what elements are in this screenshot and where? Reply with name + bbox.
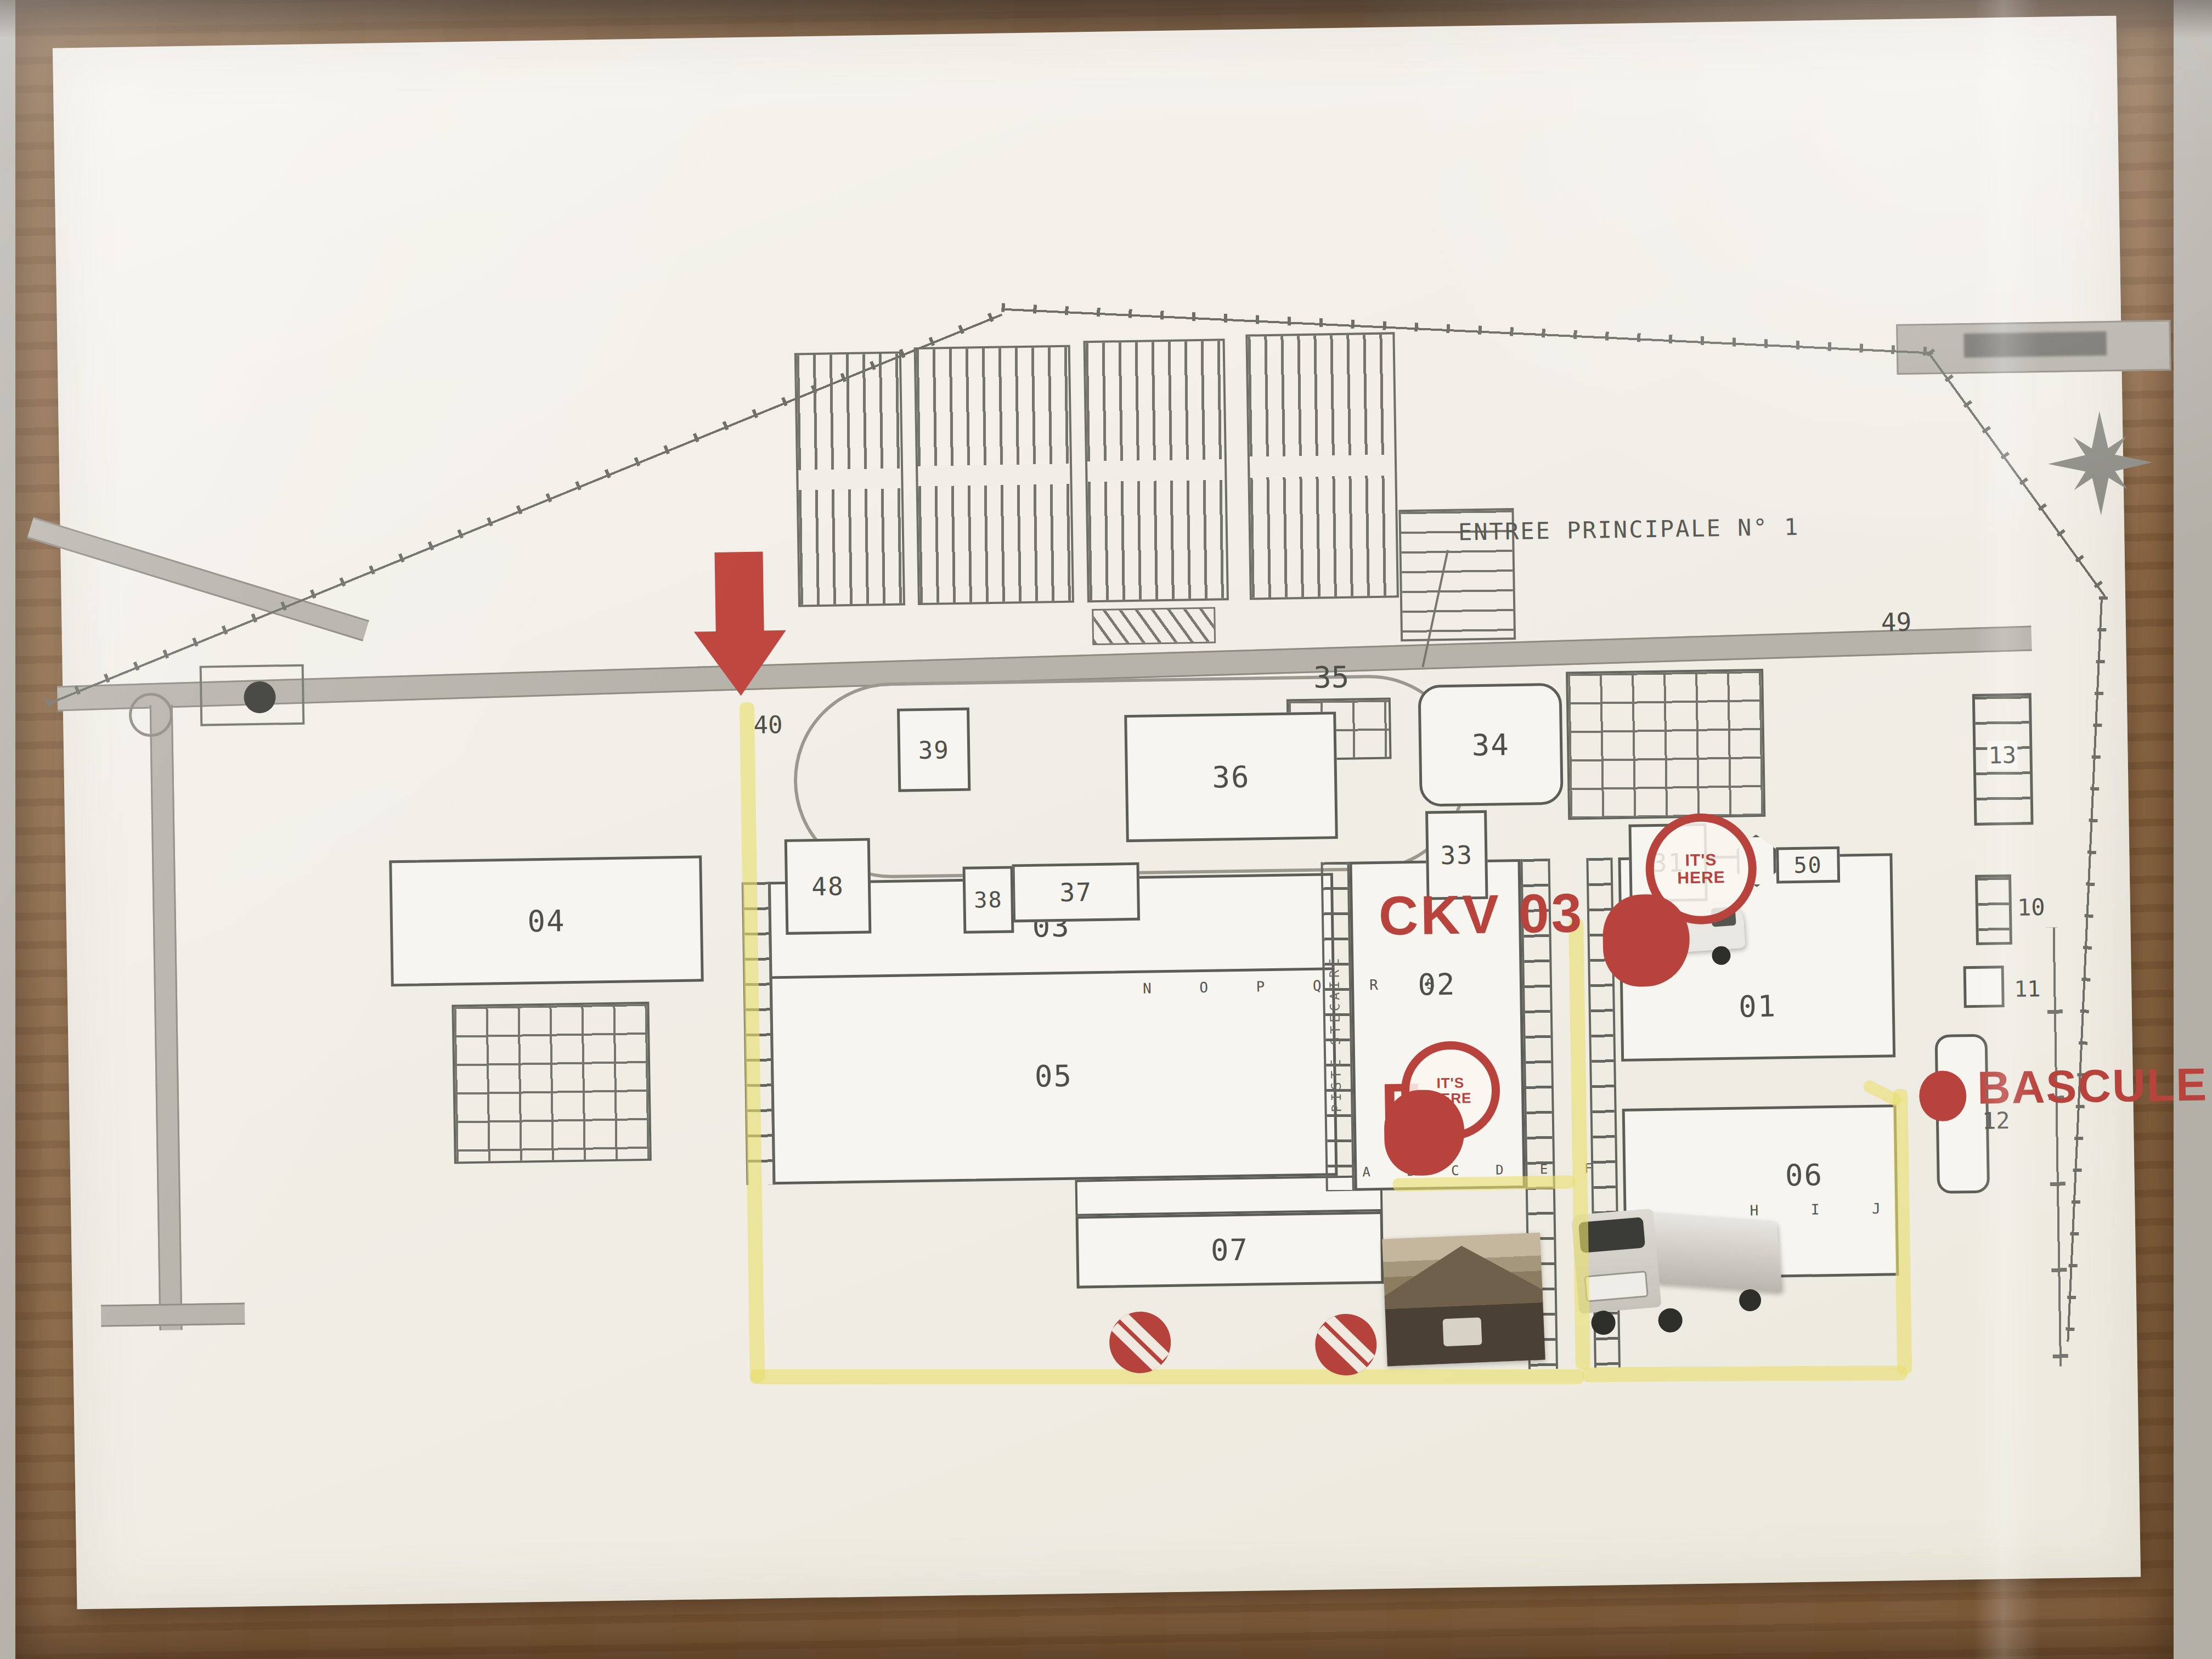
ckv-03-label: CKV 03 xyxy=(1378,881,1584,947)
building-33-label: 33 xyxy=(1440,840,1473,870)
building-11-label: 11 xyxy=(2014,976,2041,1002)
building-13-label: 13 xyxy=(1987,741,2017,770)
building-38: 38 xyxy=(963,866,1014,933)
entrance-arrow-head xyxy=(694,630,787,697)
building-37-label: 37 xyxy=(1059,877,1092,907)
warehouse-photo xyxy=(1382,1233,1545,1367)
its-here-pin-1-text: IT'S HERE xyxy=(1677,851,1725,887)
building-34-label: 34 xyxy=(1471,727,1510,763)
parking-block-3 xyxy=(1083,338,1228,602)
parking-block-2 xyxy=(914,345,1074,605)
route-bottom-left xyxy=(750,1369,1584,1384)
left-road-end xyxy=(101,1303,245,1327)
building-04: 04 xyxy=(389,855,704,986)
building-50: 50 xyxy=(1776,847,1840,884)
semi-truck-photo xyxy=(1565,1177,1785,1338)
building-35-label: 35 xyxy=(1313,660,1350,695)
building-34-grid xyxy=(1566,669,1765,820)
route-vertical-mid xyxy=(1568,918,1590,1369)
building-37: 37 xyxy=(1012,862,1140,923)
truck-wheel-2 xyxy=(1657,1307,1684,1334)
fence-right xyxy=(2065,596,2108,1342)
building-39: 39 xyxy=(897,708,970,792)
building-01-label: 01 xyxy=(1739,989,1777,1024)
site-plan-paper: 04 03 05 N O P Q R S A B C D E F 07 02 P… xyxy=(53,16,2141,1610)
parking-diagonal-lot xyxy=(1092,607,1216,646)
warehouse-roof xyxy=(1383,1243,1543,1310)
building-39-label: 39 xyxy=(918,736,950,764)
building-07-label: 07 xyxy=(1211,1232,1249,1267)
parking-block-4 xyxy=(1245,332,1399,600)
building-04-label: 04 xyxy=(527,904,566,939)
building-40-label: 40 xyxy=(753,710,783,739)
entrance-label: ENTREE PRINCIPALE N° 1 xyxy=(1458,513,1800,546)
building-48-label: 48 xyxy=(811,871,844,901)
warehouse-door xyxy=(1442,1317,1482,1346)
no-entry-icon-1 xyxy=(1109,1311,1171,1374)
left-vertical-road xyxy=(150,704,183,1330)
building-10-label: 10 xyxy=(2017,894,2045,921)
building-05: 05 xyxy=(770,967,1338,1184)
building-10 xyxy=(1975,874,2012,945)
building-36: 36 xyxy=(1124,712,1338,842)
boundary-tick-line xyxy=(2046,927,2069,1366)
truck-wheel-1 xyxy=(1590,1310,1617,1336)
building-06-label: 06 xyxy=(1785,1158,1824,1193)
building-49-label: 49 xyxy=(1881,607,1911,637)
bascule-label: BASCULE xyxy=(1977,1058,2208,1115)
parking-block-1 xyxy=(794,351,905,607)
piste-vertical-text: PISTE STECAIRE xyxy=(1327,955,1344,1113)
building-11 xyxy=(1963,966,2005,1008)
building-36-label: 36 xyxy=(1212,759,1250,794)
route-vertical-bascule xyxy=(1893,1089,1912,1374)
route-bottom-right xyxy=(1582,1365,1907,1382)
building-05-label: 05 xyxy=(1035,1058,1073,1093)
building-grid-small xyxy=(452,1002,652,1164)
building-07: 07 xyxy=(1076,1211,1384,1289)
entrance-arrow-icon xyxy=(714,551,764,633)
building-34: 34 xyxy=(1418,683,1563,807)
truck-wheel-3 xyxy=(1738,1288,1762,1312)
fence-top-right xyxy=(1926,348,2109,598)
truck-grille xyxy=(1584,1271,1649,1302)
left-access-road xyxy=(27,517,369,641)
no-entry-icon-2 xyxy=(1314,1313,1377,1376)
building-50-label: 50 xyxy=(1793,852,1822,878)
building-48: 48 xyxy=(785,838,872,934)
building-38-label: 38 xyxy=(974,887,1003,913)
